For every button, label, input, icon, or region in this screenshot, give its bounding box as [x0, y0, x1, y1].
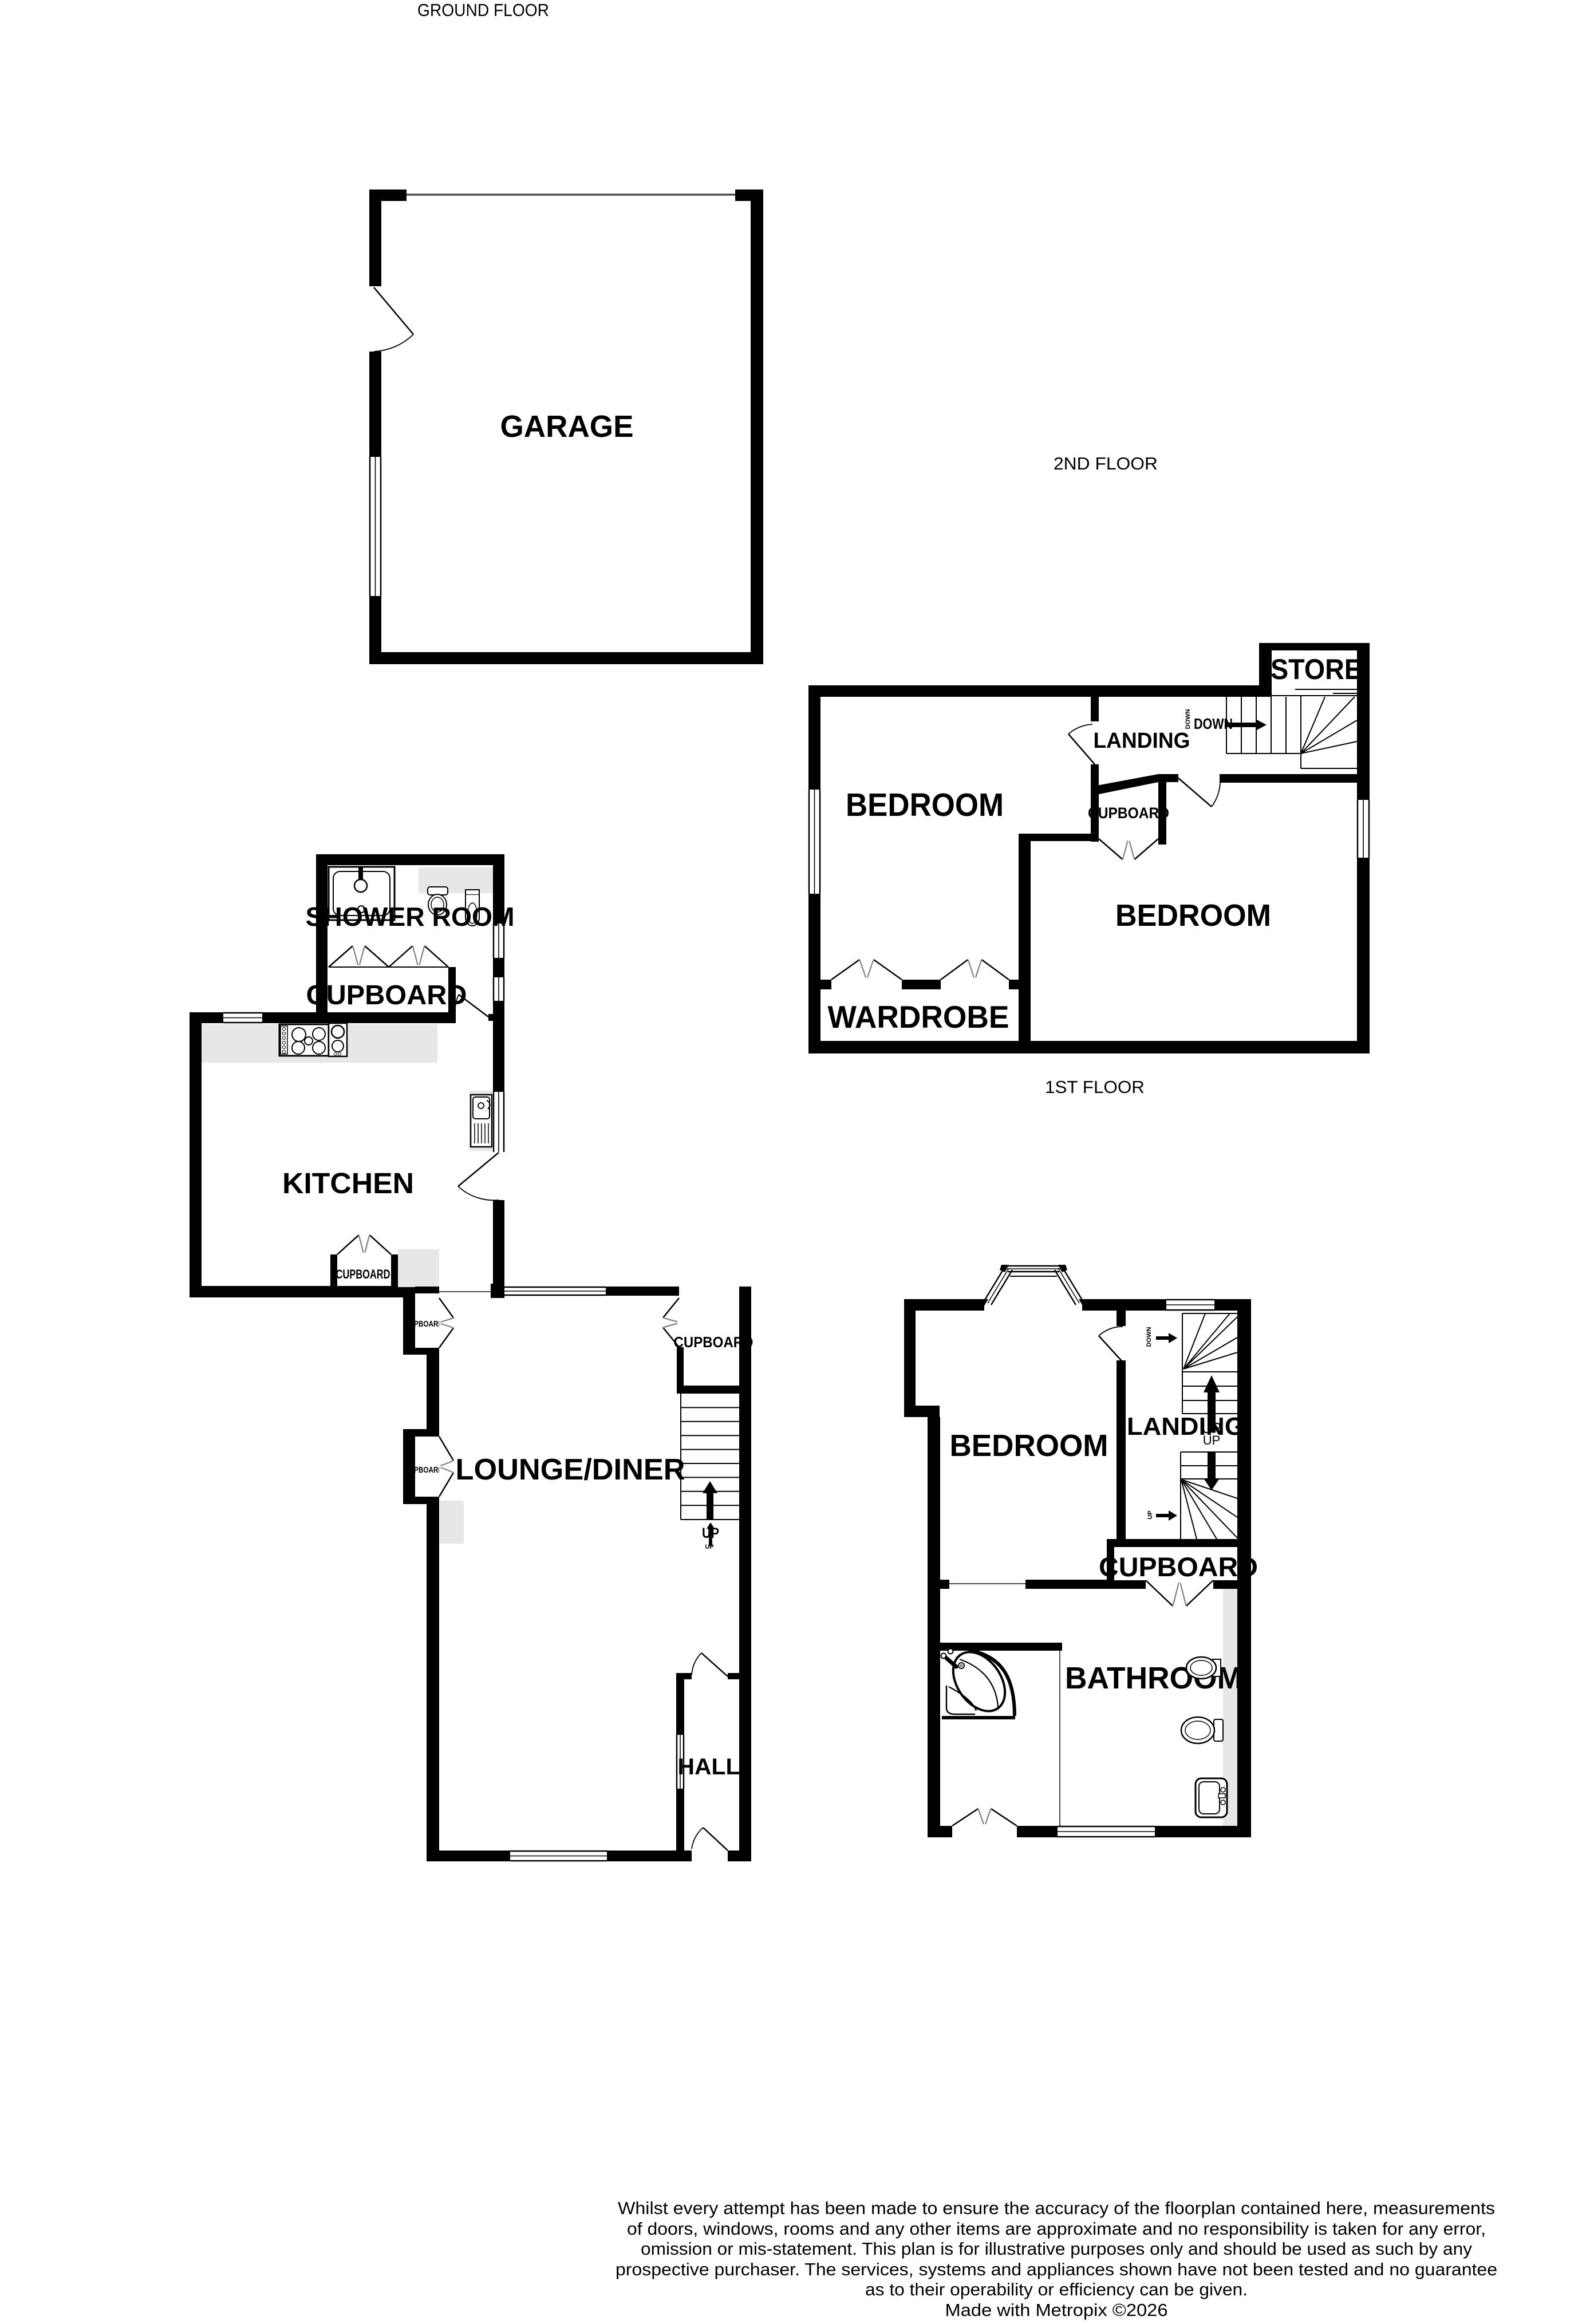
svg-text:CUPBOARD: CUPBOARD	[1099, 1552, 1258, 1582]
svg-text:2ND FLOOR: 2ND FLOOR	[1054, 453, 1158, 474]
svg-text:LOUNGE/DINER: LOUNGE/DINER	[456, 1453, 685, 1486]
svg-text:CUPBOARD: CUPBOARD	[306, 980, 467, 1011]
svg-text:as to their operability or eff: as to their operability or efficiency ca…	[865, 2279, 1248, 2299]
svg-text:DOWN: DOWN	[1185, 709, 1192, 729]
svg-text:CUPBOARD: CUPBOARD	[336, 1267, 390, 1281]
svg-text:LANDING: LANDING	[1127, 1412, 1245, 1441]
svg-text:CUPBOARD: CUPBOARD	[1088, 804, 1169, 822]
svg-text:GARAGE: GARAGE	[500, 409, 634, 444]
svg-text:DOWN: DOWN	[1146, 1327, 1153, 1347]
svg-text:BEDROOM: BEDROOM	[1115, 898, 1271, 933]
svg-text:DOWN: DOWN	[1194, 715, 1233, 732]
svg-text:BEDROOM: BEDROOM	[846, 787, 1004, 823]
svg-text:BEDROOM: BEDROOM	[950, 1429, 1108, 1463]
svg-text:STORE: STORE	[1271, 653, 1362, 685]
svg-text:omission or mis-statement. Thi: omission or mis-statement. This plan is …	[641, 2239, 1473, 2259]
svg-text:LANDING: LANDING	[1094, 729, 1190, 753]
svg-text:prospective purchaser. The ser: prospective purchaser. The services, sys…	[616, 2259, 1497, 2279]
svg-text:KITCHEN: KITCHEN	[282, 1167, 414, 1200]
svg-text:UP: UP	[705, 1544, 713, 1550]
svg-text:HALL: HALL	[678, 1754, 740, 1780]
svg-text:1ST FLOOR: 1ST FLOOR	[1045, 1077, 1145, 1097]
svg-text:Whilst every attempt has been: Whilst every attempt has been made to en…	[618, 2198, 1495, 2218]
svg-text:WARDROBE: WARDROBE	[828, 999, 1009, 1035]
svg-text:UP: UP	[1147, 1510, 1154, 1519]
svg-text:Made with Metropix ©2026: Made with Metropix ©2026	[945, 2300, 1168, 2320]
svg-text:of doors, windows, rooms and a: of doors, windows, rooms and any other i…	[627, 2219, 1486, 2239]
svg-text:SHOWER ROOM: SHOWER ROOM	[306, 902, 515, 932]
svg-text:GROUND FLOOR: GROUND FLOOR	[417, 0, 549, 20]
